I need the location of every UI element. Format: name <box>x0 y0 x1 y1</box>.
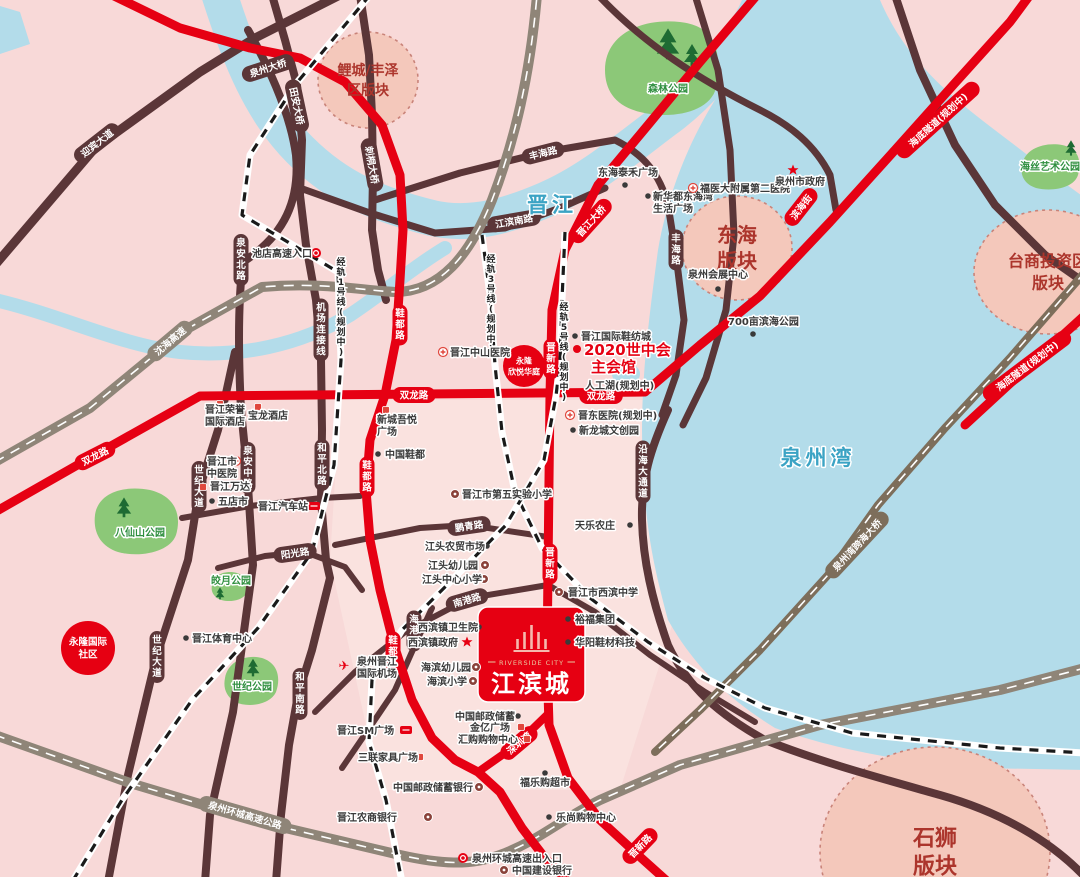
event-label-line2: 主会馆 <box>591 358 636 376</box>
bank-icon-dot <box>478 786 481 789</box>
poi-label: 池店高速入口 <box>252 247 312 260</box>
poi-label: 江头幼儿园 <box>428 559 478 572</box>
poi-dot-icon <box>750 331 756 337</box>
poi-label: 宝龙酒店 <box>248 409 288 422</box>
baxianshan-park <box>95 488 178 554</box>
poi-label: 晋江中山医院 <box>450 346 510 359</box>
poi-label: 泉州环城高速出入口 <box>471 852 562 865</box>
road-label: 双龙路 <box>392 387 436 403</box>
yonglong-intl-community: 永隆国际社区 <box>61 621 115 675</box>
mall-icon <box>518 724 525 731</box>
poi: 乐尚购物中心 <box>546 811 616 824</box>
road-label: 机场连接线 <box>314 299 329 362</box>
poi: 江头农贸市场 <box>425 540 490 553</box>
school-icon-dot <box>483 578 486 581</box>
zone-label-text: 版块 <box>1031 274 1065 293</box>
poi-label: 晋江荣誉国际酒店 <box>205 403 246 428</box>
yonglong-intl-community-text: 社区 <box>77 649 98 661</box>
poi-label: 裕福集团 <box>574 613 615 626</box>
poi-dot-icon <box>565 616 571 622</box>
poi: 华阳鞋材科技 <box>565 636 636 649</box>
yonglong-xinyue-text: 永隆 <box>515 355 533 365</box>
baxianshan-park-area <box>95 488 178 554</box>
road-label: 晋新路 <box>543 544 558 585</box>
poi-label: 江头中心小学 <box>422 573 482 586</box>
poi-label: 江头农贸市场 <box>425 540 485 553</box>
project-title: 江滨城 <box>491 670 572 698</box>
school-icon-dot <box>475 666 478 669</box>
mall-icon <box>524 736 531 743</box>
zone-label-text: 鲤城/丰泽 <box>336 62 398 79</box>
poi-dot-icon <box>515 713 521 719</box>
poi-dot-icon <box>542 770 548 776</box>
road-label-text: 丰海路 <box>671 233 681 267</box>
poi-dot-icon <box>375 451 381 457</box>
poi: 西滨镇卫生院 <box>418 621 482 634</box>
poi-label: 西滨镇卫生院 <box>418 621 478 634</box>
poi-dot-icon <box>209 498 215 504</box>
poi: 新龙城文创园 <box>570 424 639 437</box>
poi-label: 东海泰禾广场 <box>598 166 658 179</box>
water-name-label: 晋江 <box>527 193 577 217</box>
poi-label: 中国邮政储蓄银行 <box>393 781 473 794</box>
poi-dot-icon <box>570 427 576 433</box>
road-label-text: 和平南路 <box>294 671 305 716</box>
poi: 晋东医院(规划中) <box>566 409 658 422</box>
yonglong-intl-community-text: 永隆国际 <box>68 636 108 648</box>
poi: 池店高速入口 <box>252 247 321 260</box>
road-label-text: 机场连接线 <box>316 302 326 358</box>
poi: 三联家具广场 <box>358 751 424 764</box>
poi-dot-icon <box>715 286 721 292</box>
poi-label: 晋江SM广场 <box>337 724 394 737</box>
poi-label: 晋江万达 <box>210 480 250 493</box>
road-label-text: 鞋都路 <box>394 308 405 342</box>
poi-label: 中国邮政储蓄 <box>455 710 515 723</box>
poi-label: 新龙城文创园 <box>579 424 639 437</box>
poi: 晋江市中医院 <box>207 455 241 480</box>
project-subtitle: RIVERSIDE CITY <box>499 659 564 667</box>
zone-label-text: 台商投资区 <box>1008 252 1080 271</box>
road-label: 鞋都路 <box>360 457 375 498</box>
poi: 晋江荣誉国际酒店 <box>205 401 246 429</box>
poi: 晋江市第五实验小学 <box>451 488 553 501</box>
road-label-text: 沿海大通道 <box>638 444 648 500</box>
poi-label: 晋江市中医院 <box>207 455 237 480</box>
water-name-label: 泉州湾 <box>781 446 856 470</box>
venue-dot-icon <box>573 345 581 353</box>
poi: 江头中心小学 <box>422 573 489 586</box>
poi-label: 晋江汽车站 <box>258 500 308 513</box>
school-icon-dot <box>454 493 457 496</box>
mall-icon <box>383 407 390 414</box>
poi: 泉州环城高速出入口 <box>458 852 562 865</box>
poi-dot-icon <box>572 333 578 339</box>
road-label: 沿海大通道 <box>636 441 651 504</box>
poi-label: 西滨镇政府 <box>408 636 458 649</box>
road-label: 泉安北路 <box>234 234 249 286</box>
poi-label: 泉州晋江国际机场 <box>356 655 397 680</box>
zone-label-text: 石狮 <box>912 827 957 852</box>
poi-label: 福乐购超市 <box>519 776 570 789</box>
poi-dot-icon <box>565 639 571 645</box>
metro-line-1-label: 经轨1号线(规划中) <box>336 256 345 358</box>
shiji-park-label: 世纪公园 <box>232 680 272 693</box>
haisi-art-park-label: 海丝艺术公园 <box>1020 160 1080 173</box>
bank-icon-dot <box>427 816 430 819</box>
school-icon-dot <box>472 680 475 683</box>
baxianshan-park-label: 八仙山公园 <box>114 526 165 539</box>
poi-label: 晋东医院(规划中) <box>578 409 657 422</box>
zone-label-text: 版块 <box>913 855 958 877</box>
poi-dot-icon <box>546 814 552 820</box>
poi-dot-icon <box>627 522 633 528</box>
jiaoyue-park-label: 皎月公园 <box>211 574 251 587</box>
map-canvas: 迎宾大道泉州大桥田安大桥刺桐大桥泉安北路江滨南路丰海路丰海路沈海高速泉州环城高速… <box>0 0 1080 877</box>
road-label-text: 双龙路 <box>399 390 429 402</box>
poi-label: 晋江市第五实验小学 <box>462 488 552 501</box>
road-label-text: 晋新路 <box>546 343 556 376</box>
poi-label: 天乐农庄 <box>575 519 615 532</box>
road-label-text: 晋新路 <box>545 548 555 581</box>
metro-line-3-label: 经轨3号线(规划中) <box>486 253 495 355</box>
poi-label: 晋江体育中心 <box>192 632 252 645</box>
road-label-text: 鞋都路 <box>361 460 372 494</box>
poi-dot-icon <box>183 635 189 641</box>
road-label-text: 泉安北路 <box>235 237 246 282</box>
senlin-park-area <box>605 21 718 115</box>
senlin-park-label: 森林公园 <box>647 82 688 95</box>
poi: 晋江体育中心 <box>183 632 252 645</box>
poi-label: 五店市 <box>218 495 248 508</box>
poi: 晋江市西滨中学 <box>555 586 639 599</box>
poi-dot-icon <box>645 193 651 199</box>
poi: 晋江国际鞋纺城 <box>572 330 651 343</box>
poi-label: 汇购购物中心 <box>458 733 518 746</box>
poi-label: 人工湖(规划中) <box>585 379 654 392</box>
poi: 晋江中山医院 <box>439 346 511 359</box>
senlin-park <box>605 21 718 115</box>
poi-label: 海滨幼儿园 <box>421 661 471 674</box>
poi-label: 泉州会展中心 <box>687 268 748 281</box>
poi-label: 晋江市西滨中学 <box>568 586 638 599</box>
road-label-text: 和平北路 <box>316 442 327 487</box>
school-icon-dot <box>558 591 561 594</box>
poi-label: 晋江农商银行 <box>337 811 397 824</box>
poi-label: 晋江国际鞋纺城 <box>581 330 651 343</box>
poi-dot-icon <box>484 543 490 549</box>
poi-label: 700亩滨海公园 <box>728 315 799 328</box>
road-label-text: 世纪大道 <box>152 634 162 679</box>
zone-label-text: 区版块 <box>347 82 390 99</box>
poi-label: 华阳鞋材科技 <box>575 636 636 649</box>
yonglong-xinyue-text: 欣悦华庭 <box>508 366 541 376</box>
road-label: 丰海路 <box>669 230 684 271</box>
road-label-text: 双龙路 <box>586 391 616 403</box>
poi-dot-icon <box>622 182 628 188</box>
bank-icon-dot <box>503 869 506 872</box>
road-label: 世纪大道 <box>150 631 165 683</box>
poi-label: 中国鞋都 <box>385 448 425 461</box>
location-map: 迎宾大道泉州大桥田安大桥刺桐大桥泉安北路江滨南路丰海路丰海路沈海高速泉州环城高速… <box>0 0 1080 877</box>
highway-entrance-icon <box>311 248 321 258</box>
road-label: 鞋都路 <box>393 305 408 346</box>
zone-label-text: 东海 <box>717 223 757 247</box>
poi-label: 中国建设银行 <box>512 864 572 877</box>
poi-label: 三联家具广场 <box>358 751 418 764</box>
event-label-line1: 2020世中会 <box>584 341 671 359</box>
mall-icon <box>255 404 262 411</box>
school-icon-dot <box>484 564 487 567</box>
airplane-icon: ✈ <box>339 659 350 674</box>
road-label: 和平南路 <box>293 668 308 720</box>
road-label: 晋新路 <box>544 339 559 380</box>
poi: 中国邮政储蓄 <box>455 710 521 723</box>
poi-label: 乐尚购物中心 <box>556 811 616 824</box>
poi-label: 泉州市政府 <box>774 175 825 188</box>
road-label: 和平北路 <box>315 439 330 491</box>
poi: 中国邮政储蓄银行 <box>393 781 484 794</box>
poi-label: 金亿广场 <box>469 721 510 734</box>
poi-label: 海滨小学 <box>427 675 467 688</box>
poi: 人工湖(规划中) <box>585 379 654 392</box>
mall-icon <box>200 484 207 491</box>
highway-entrance-icon <box>458 853 468 863</box>
metro-line-5-label: 经轨5号线(规划中) <box>559 301 568 403</box>
